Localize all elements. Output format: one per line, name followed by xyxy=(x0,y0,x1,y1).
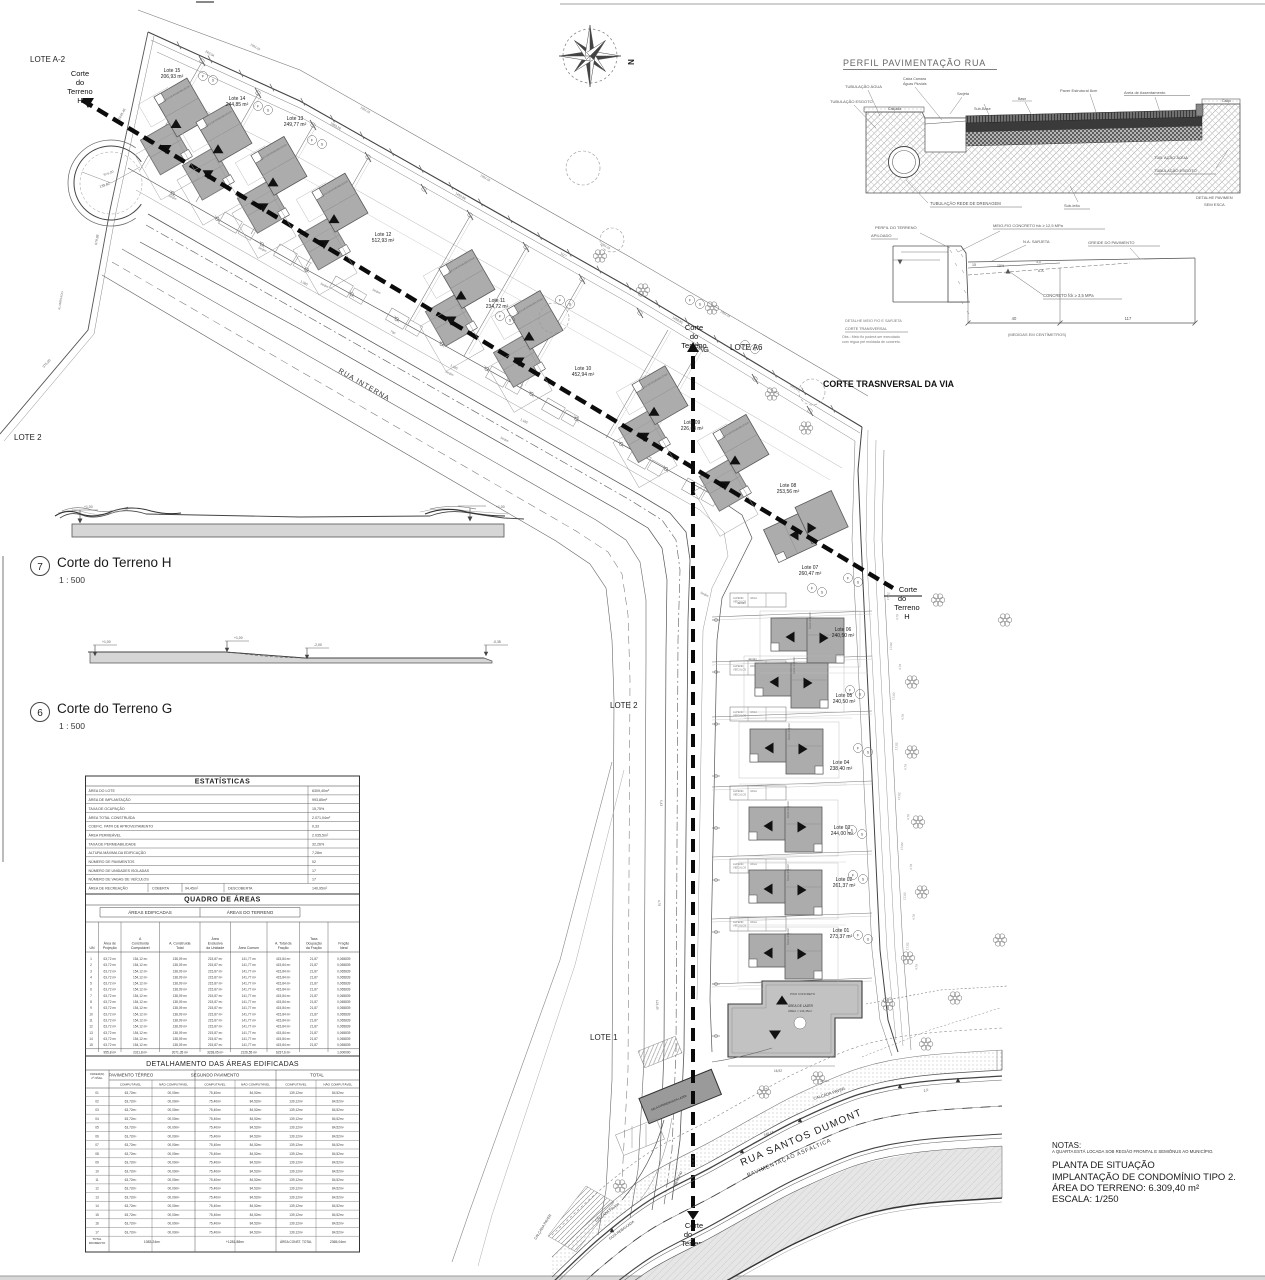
svg-text:84,52m²: 84,52m² xyxy=(250,1178,262,1182)
svg-text:0,065839: 0,065839 xyxy=(337,1019,351,1023)
svg-text:S: S xyxy=(509,318,512,323)
svg-text:Corte: Corte xyxy=(685,1221,703,1230)
svg-text:15: 15 xyxy=(972,263,976,267)
svg-text:139,12m²: 139,12m² xyxy=(289,1161,302,1165)
svg-text:63,72 m²: 63,72 m² xyxy=(104,994,117,998)
svg-text:141,77 m²: 141,77 m² xyxy=(242,1025,256,1029)
svg-text:84,52m²: 84,52m² xyxy=(332,1195,344,1199)
svg-text:139,12m²: 139,12m² xyxy=(289,1091,302,1095)
svg-text:+1281,88m²: +1281,88m² xyxy=(226,1240,245,1244)
svg-text:NÃO COMPUTÁVEL: NÃO COMPUTÁVEL xyxy=(241,1082,270,1087)
svg-text:141,77 m²: 141,77 m² xyxy=(242,1037,256,1041)
svg-text:Taxa: Taxa xyxy=(310,937,317,941)
svg-text:260,47 m²: 260,47 m² xyxy=(799,571,822,577)
svg-text:LOTE 2: LOTE 2 xyxy=(14,433,42,442)
svg-text:COMPUTÁVEL: COMPUTÁVEL xyxy=(120,1083,142,1087)
svg-text:139,12m²: 139,12m² xyxy=(289,1213,302,1217)
svg-text:117: 117 xyxy=(1125,316,1132,321)
svg-text:84,52m²: 84,52m² xyxy=(332,1230,344,1234)
svg-text:Jardim: Jardim xyxy=(748,657,758,661)
svg-text:75,40m²: 75,40m² xyxy=(209,1161,221,1165)
svg-text:da Unidade: da Unidade xyxy=(206,946,224,950)
svg-text:PERFIL DO TERRENO: PERFIL DO TERRENO xyxy=(875,225,917,230)
svg-text:0,065839: 0,065839 xyxy=(337,1012,351,1016)
svg-text:ÁREAS DO TERRENO: ÁREAS DO TERRENO xyxy=(227,909,274,915)
svg-text:ESTATÍSTICAS: ESTATÍSTICAS xyxy=(195,777,251,786)
svg-text:63,72m²: 63,72m² xyxy=(125,1100,137,1104)
svg-text:A. Construída: A. Construída xyxy=(169,942,190,946)
svg-text:Ideal: Ideal xyxy=(340,946,348,950)
svg-text:Terreno: Terreno xyxy=(67,87,92,96)
svg-text:84,52m²: 84,52m² xyxy=(332,1169,344,1173)
svg-text:1,000000: 1,000000 xyxy=(337,1051,351,1055)
svg-text:0,065839: 0,065839 xyxy=(337,982,351,986)
svg-text:1 : 500: 1 : 500 xyxy=(59,575,85,585)
svg-text:63,72 m²: 63,72 m² xyxy=(104,963,117,967)
svg-text:12: 12 xyxy=(89,1025,93,1029)
svg-text:Terreno: Terreno xyxy=(894,603,919,612)
svg-text:63,72m²: 63,72m² xyxy=(125,1134,137,1138)
svg-text:07: 07 xyxy=(95,1143,99,1147)
svg-text:84,52m²: 84,52m² xyxy=(250,1100,262,1104)
svg-text:Calçada: Calçada xyxy=(888,107,901,111)
svg-text:4,78: 4,78 xyxy=(912,914,916,920)
svg-text:415,84 m²: 415,84 m² xyxy=(276,963,290,967)
svg-text:84,52m²: 84,52m² xyxy=(332,1143,344,1147)
svg-text:7: 7 xyxy=(90,994,92,998)
svg-text:84,52m²: 84,52m² xyxy=(250,1195,262,1199)
svg-text:17: 17 xyxy=(312,869,316,873)
svg-text:GREIDE DO PAVIMENTO: GREIDE DO PAVIMENTO xyxy=(1088,240,1134,245)
svg-text:154,12 m²: 154,12 m² xyxy=(133,1012,147,1016)
svg-text:TUBULAÇÃO ESGOTO: TUBULAÇÃO ESGOTO xyxy=(830,99,873,104)
svg-text:75,40m²: 75,40m² xyxy=(209,1213,221,1217)
svg-text:COBERTA: COBERTA xyxy=(152,887,170,891)
svg-text:139,12m²: 139,12m² xyxy=(289,1178,302,1182)
svg-text:PERFIL PAVIMENTAÇÃO RUA: PERFIL PAVIMENTAÇÃO RUA xyxy=(843,58,986,68)
svg-text:5: 5 xyxy=(90,982,92,986)
svg-text:CORTE TRANSVERSAL: CORTE TRANSVERSAL xyxy=(845,327,887,331)
svg-text:84,52m²: 84,52m² xyxy=(332,1213,344,1217)
svg-text:PLANTA DE SITUAÇÃO: PLANTA DE SITUAÇÃO xyxy=(1052,1160,1155,1171)
svg-text:3238,05 m²: 3238,05 m² xyxy=(207,1051,223,1055)
svg-text:S: S xyxy=(862,877,865,882)
svg-text:S: S xyxy=(569,302,572,307)
svg-text:415,84 m²: 415,84 m² xyxy=(276,1031,290,1035)
svg-text:S: S xyxy=(867,937,870,942)
svg-text:00,00m²: 00,00m² xyxy=(168,1230,180,1234)
svg-text:84,52m²: 84,52m² xyxy=(250,1091,262,1095)
svg-text:240,50 m²: 240,50 m² xyxy=(832,633,855,639)
svg-text:21,87: 21,87 xyxy=(310,982,318,986)
svg-text:17,02: 17,02 xyxy=(900,842,904,850)
svg-text:COMPUTÁVEL: COMPUTÁVEL xyxy=(285,1083,307,1087)
svg-text:154,12 m²: 154,12 m² xyxy=(133,957,147,961)
svg-text:138,09 m²: 138,09 m² xyxy=(173,982,187,986)
svg-text:16: 16 xyxy=(95,1222,99,1226)
svg-text:A. Total da: A. Total da xyxy=(275,942,292,946)
svg-text:84,52m²: 84,52m² xyxy=(332,1187,344,1191)
svg-text:138,09 m²: 138,09 m² xyxy=(173,969,187,973)
svg-text:ALPEND.: ALPEND. xyxy=(733,596,744,600)
svg-text:21,87: 21,87 xyxy=(310,1031,318,1035)
svg-text:63,72m²: 63,72m² xyxy=(125,1187,137,1191)
svg-text:139,12m²: 139,12m² xyxy=(289,1134,302,1138)
svg-text:139,12m²: 139,12m² xyxy=(289,1195,302,1199)
svg-text:84,52m²: 84,52m² xyxy=(250,1143,262,1147)
svg-text:IMPLANTAÇÃO DE CONDOMÍNIO TIPO: IMPLANTAÇÃO DE CONDOMÍNIO TIPO 2. xyxy=(1052,1172,1236,1183)
svg-text:ÁREA PERMEÁVEL: ÁREA PERMEÁVEL xyxy=(89,834,122,838)
svg-text:00,00m²: 00,00m² xyxy=(168,1152,180,1156)
svg-text:75,40m²: 75,40m² xyxy=(209,1117,221,1121)
svg-text:84,52m²: 84,52m² xyxy=(332,1091,344,1095)
svg-text:138,09 m²: 138,09 m² xyxy=(173,963,187,967)
svg-text:00,00m²: 00,00m² xyxy=(168,1178,180,1182)
svg-text:415,84 m²: 415,84 m² xyxy=(276,1000,290,1004)
svg-text:TAXA DE PERMEABILIDADE: TAXA DE PERMEABILIDADE xyxy=(89,842,137,846)
svg-text:S: S xyxy=(867,750,870,755)
svg-text:ÁREA IMPERM.: ÁREA IMPERM. xyxy=(787,800,790,818)
svg-text:4,78: 4,78 xyxy=(906,814,910,820)
svg-text:154,12 m²: 154,12 m² xyxy=(133,1031,147,1035)
svg-text:21,87: 21,87 xyxy=(310,1006,318,1010)
svg-text:Corte do Terreno H: Corte do Terreno H xyxy=(57,555,172,570)
svg-text:2071,35 m²: 2071,35 m² xyxy=(172,1051,188,1055)
svg-text:17,02: 17,02 xyxy=(897,792,901,800)
svg-text:141,77 m²: 141,77 m² xyxy=(242,994,256,998)
svg-text:DETALHE MEIO FIO E SARJETA: DETALHE MEIO FIO E SARJETA xyxy=(845,319,902,323)
svg-text:00,00m²: 00,00m² xyxy=(168,1222,180,1226)
svg-text:63,72m²: 63,72m² xyxy=(125,1195,137,1199)
svg-text:ALPEND.: ALPEND. xyxy=(733,862,744,866)
svg-text:21,87: 21,87 xyxy=(310,1025,318,1029)
svg-text:415,84 m²: 415,84 m² xyxy=(276,994,290,998)
svg-text:84,52m²: 84,52m² xyxy=(250,1222,262,1226)
svg-text:141,77 m²: 141,77 m² xyxy=(242,988,256,992)
svg-text:LOTE 1: LOTE 1 xyxy=(590,1033,618,1042)
svg-text:0,065839: 0,065839 xyxy=(337,1031,351,1035)
svg-text:21,87: 21,87 xyxy=(310,1043,318,1047)
svg-text:226,63 m²: 226,63 m² xyxy=(681,426,704,432)
svg-text:0,065839: 0,065839 xyxy=(337,994,351,998)
svg-text:00,00m²: 00,00m² xyxy=(168,1169,180,1173)
svg-text:0,065839: 0,065839 xyxy=(337,957,351,961)
svg-text:415,84 m²: 415,84 m² xyxy=(276,1037,290,1041)
svg-text:Sub-leito: Sub-leito xyxy=(1064,203,1081,208)
svg-text:5,43: 5,43 xyxy=(659,800,663,807)
svg-text:4,78: 4,78 xyxy=(903,764,907,770)
svg-text:ESCALA: 1/250: ESCALA: 1/250 xyxy=(1052,1194,1119,1205)
svg-text:14: 14 xyxy=(89,1037,93,1041)
svg-text:84,52m²: 84,52m² xyxy=(250,1187,262,1191)
svg-text:04: 04 xyxy=(95,1117,99,1121)
svg-text:TAXA DE OCUPAÇÃO: TAXA DE OCUPAÇÃO xyxy=(89,806,125,811)
svg-text:NÃO COMPUTÁVEL: NÃO COMPUTÁVEL xyxy=(159,1082,188,1087)
svg-text:84,52m²: 84,52m² xyxy=(332,1152,344,1156)
svg-text:2126,55 m²: 2126,55 m² xyxy=(241,1051,257,1055)
svg-text:955,8 m²: 955,8 m² xyxy=(104,1051,117,1055)
svg-text:141,77 m²: 141,77 m² xyxy=(242,1043,256,1047)
svg-text:QUADRO DE ÁREAS: QUADRO DE ÁREAS xyxy=(184,895,261,904)
svg-text:0,065839: 0,065839 xyxy=(337,1043,351,1047)
svg-text:154,12 m²: 154,12 m² xyxy=(133,963,147,967)
svg-text:1083,24m²: 1083,24m² xyxy=(144,1240,161,1244)
svg-text:141,77 m²: 141,77 m² xyxy=(242,975,256,979)
svg-text:2º NÍVEL: 2º NÍVEL xyxy=(91,1076,103,1080)
svg-text:S: S xyxy=(267,108,270,113)
svg-text:ÁREA DE RECREAÇÃO: ÁREA DE RECREAÇÃO xyxy=(89,886,129,891)
svg-text:141,77 m²: 141,77 m² xyxy=(242,1006,256,1010)
svg-text:VEÍCULOS: VEÍCULOS xyxy=(733,714,746,718)
svg-text:10: 10 xyxy=(95,1169,99,1173)
svg-text:244,85 m²: 244,85 m² xyxy=(226,102,249,108)
svg-text:21,87: 21,87 xyxy=(310,1000,318,1004)
svg-text:215,87 m²: 215,87 m² xyxy=(208,1025,222,1029)
svg-text:215,87 m²: 215,87 m² xyxy=(208,988,222,992)
svg-text:63,72 m²: 63,72 m² xyxy=(104,1025,117,1029)
svg-text:ALPEND.: ALPEND. xyxy=(733,920,744,924)
svg-text:123,45: 123,45 xyxy=(655,1000,659,1010)
svg-text:00,00m²: 00,00m² xyxy=(168,1091,180,1095)
svg-text:21,87: 21,87 xyxy=(310,1037,318,1041)
svg-text:139,12m²: 139,12m² xyxy=(289,1126,302,1130)
svg-text:17,02: 17,02 xyxy=(886,592,890,600)
svg-text:2365,04m²: 2365,04m² xyxy=(330,1240,347,1244)
svg-text:154,12 m²: 154,12 m² xyxy=(133,994,147,998)
svg-text:84,52m²: 84,52m² xyxy=(250,1169,262,1173)
svg-text:84,52m²: 84,52m² xyxy=(250,1152,262,1156)
svg-text:21,87: 21,87 xyxy=(310,1012,318,1016)
svg-text:138,09 m²: 138,09 m² xyxy=(173,988,187,992)
svg-text:Exclusiva: Exclusiva xyxy=(208,942,223,946)
svg-text:TOTAL: TOTAL xyxy=(310,1073,324,1078)
svg-text:00,00m²: 00,00m² xyxy=(168,1100,180,1104)
svg-text:215,87 m²: 215,87 m² xyxy=(208,963,222,967)
svg-text:512,93 m²: 512,93 m² xyxy=(372,238,395,244)
svg-text:ALTURA MÁXIMA DA EDIFICAÇÃO: ALTURA MÁXIMA DA EDIFICAÇÃO xyxy=(89,850,147,855)
svg-text:Computável: Computável xyxy=(131,946,150,950)
svg-text:05: 05 xyxy=(95,1126,99,1130)
svg-text:Corte: Corte xyxy=(71,69,89,78)
svg-text:63,72 m²: 63,72 m² xyxy=(104,1019,117,1023)
svg-text:215,87 m²: 215,87 m² xyxy=(208,994,222,998)
svg-text:84,52m²: 84,52m² xyxy=(332,1178,344,1182)
svg-text:ALPEND.: ALPEND. xyxy=(733,710,744,714)
svg-text:0,065839: 0,065839 xyxy=(337,988,351,992)
svg-text:63,72m²: 63,72m² xyxy=(125,1204,137,1208)
svg-text:75,40m²: 75,40m² xyxy=(209,1204,221,1208)
svg-text:21,87: 21,87 xyxy=(310,969,318,973)
svg-text:84,52m²: 84,52m² xyxy=(332,1126,344,1130)
svg-text:154,12 m²: 154,12 m² xyxy=(133,988,147,992)
svg-text:75,40m²: 75,40m² xyxy=(209,1108,221,1112)
svg-text:63,72m²: 63,72m² xyxy=(125,1152,137,1156)
svg-text:00,00m²: 00,00m² xyxy=(168,1195,180,1199)
svg-text:NÚMERO DE UNIDADES ISOLADAS: NÚMERO DE UNIDADES ISOLADAS xyxy=(89,868,150,873)
svg-text:141,77 m²: 141,77 m² xyxy=(242,1000,256,1004)
svg-text:84,52m²: 84,52m² xyxy=(332,1222,344,1226)
svg-text:+1,00: +1,00 xyxy=(102,640,111,644)
svg-text:APILOADO: APILOADO xyxy=(871,233,891,238)
svg-text:LOTE 2: LOTE 2 xyxy=(610,701,638,710)
svg-text:VAGA: VAGA xyxy=(750,789,757,793)
svg-text:SEM ESCA: SEM ESCA xyxy=(1204,202,1225,207)
svg-text:84,52m²: 84,52m² xyxy=(250,1213,262,1217)
svg-text:DETALHAMENTO DAS ÁREAS EDIFIC: DETALHAMENTO DAS ÁREAS EDIFICADAS xyxy=(146,1059,299,1068)
svg-text:249,77 m²: 249,77 m² xyxy=(284,122,307,128)
svg-text:TUBULAÇÃO REDE DE DRENAGEM: TUBULAÇÃO REDE DE DRENAGEM xyxy=(930,201,1001,206)
svg-text:215,87 m²: 215,87 m² xyxy=(208,1006,222,1010)
svg-text:Calçx: Calçx xyxy=(1222,99,1231,103)
svg-text:9: 9 xyxy=(90,1006,92,1010)
svg-text:415,84 m²: 415,84 m² xyxy=(276,1012,290,1016)
svg-text:215,87 m²: 215,87 m² xyxy=(208,982,222,986)
svg-text:139,12m²: 139,12m² xyxy=(289,1117,302,1121)
svg-text:415,84 m²: 415,84 m² xyxy=(276,988,290,992)
svg-text:84,52m²: 84,52m² xyxy=(332,1108,344,1112)
svg-text:138,09 m²: 138,09 m² xyxy=(173,975,187,979)
svg-text:75,40m²: 75,40m² xyxy=(209,1230,221,1234)
svg-text:00,00m²: 00,00m² xyxy=(168,1213,180,1217)
svg-text:16,92: 16,92 xyxy=(774,1069,782,1073)
svg-text:253,56 m²: 253,56 m² xyxy=(777,489,800,495)
svg-text:63,72 m²: 63,72 m² xyxy=(104,1012,117,1016)
svg-text:215,87 m²: 215,87 m² xyxy=(208,1019,222,1023)
svg-text:Fração: Fração xyxy=(338,942,349,946)
svg-text:215,87 m²: 215,87 m² xyxy=(208,1000,222,1004)
svg-text:7: 7 xyxy=(37,562,43,573)
svg-text:ÁREA IMPERM.: ÁREA IMPERM. xyxy=(793,656,796,674)
svg-text:VAGA: VAGA xyxy=(750,862,757,866)
svg-text:Base: Base xyxy=(1018,97,1026,101)
svg-text:75,40m²: 75,40m² xyxy=(209,1091,221,1095)
svg-text:NÚMERO DE VAGAS DE VEÍCULOS: NÚMERO DE VAGAS DE VEÍCULOS xyxy=(89,877,150,882)
svg-text:VAGA: VAGA xyxy=(750,920,757,924)
svg-text:17,02: 17,02 xyxy=(905,942,909,950)
svg-text:A QUARTA ESTÁ LOCADA SOB REGIÃ: A QUARTA ESTÁ LOCADA SOB REGIÃO FRONTAL … xyxy=(1052,1149,1213,1154)
svg-text:138,09 m²: 138,09 m² xyxy=(173,1037,187,1041)
svg-text:S: S xyxy=(857,580,860,585)
svg-text:21,87: 21,87 xyxy=(310,994,318,998)
svg-text:63,72 m²: 63,72 m² xyxy=(104,975,117,979)
svg-text:17: 17 xyxy=(95,1230,99,1234)
svg-text:COEFIC. PATR DE APROVEITAMENTO: COEFIC. PATR DE APROVEITAMENTO xyxy=(89,825,154,829)
svg-text:415,84 m²: 415,84 m² xyxy=(276,1006,290,1010)
svg-text:00,00m²: 00,00m² xyxy=(168,1117,180,1121)
svg-text:215,87 m²: 215,87 m² xyxy=(208,1043,222,1047)
svg-text:63,72 m²: 63,72 m² xyxy=(104,982,117,986)
svg-text:415,84 m²: 415,84 m² xyxy=(276,957,290,961)
svg-text:154,12 m²: 154,12 m² xyxy=(133,1037,147,1041)
svg-text:06: 06 xyxy=(95,1134,99,1138)
svg-text:00,00m²: 00,00m² xyxy=(168,1143,180,1147)
svg-text:PAVIMENTO TÉRREO: PAVIMENTO TÉRREO xyxy=(109,1073,154,1078)
svg-text:141,77 m²: 141,77 m² xyxy=(242,957,256,961)
svg-text:141,77 m²: 141,77 m² xyxy=(242,982,256,986)
svg-text:63,72m²: 63,72m² xyxy=(125,1117,137,1121)
svg-text:ÁREA DE IMPLANTAÇÃO: ÁREA DE IMPLANTAÇÃO xyxy=(89,797,131,802)
svg-text:A.A.: A.A. xyxy=(1038,269,1044,273)
svg-text:415,84 m²: 415,84 m² xyxy=(276,982,290,986)
svg-text:138,09 m²: 138,09 m² xyxy=(173,1043,187,1047)
svg-text:139,12m²: 139,12m² xyxy=(289,1222,302,1226)
svg-text:15%: 15% xyxy=(997,264,1005,268)
svg-text:84,52m²: 84,52m² xyxy=(332,1100,344,1104)
svg-text:6237,6 m²: 6237,6 m² xyxy=(276,1051,290,1055)
svg-text:S: S xyxy=(859,692,862,697)
svg-text:154,12 m²: 154,12 m² xyxy=(133,982,147,986)
svg-text:10: 10 xyxy=(89,1012,93,1016)
svg-text:Caixa Camara: Caixa Camara xyxy=(903,77,926,81)
svg-text:01: 01 xyxy=(95,1091,99,1095)
svg-text:2: 2 xyxy=(90,963,92,967)
svg-text:ÁREA DO TERRENO: 6.309,40 m²: ÁREA DO TERRENO: 6.309,40 m² xyxy=(1052,1183,1199,1194)
svg-text:139,12m²: 139,12m² xyxy=(289,1108,302,1112)
svg-text:75,40m²: 75,40m² xyxy=(209,1134,221,1138)
svg-text:13: 13 xyxy=(89,1031,93,1035)
svg-text:206,93 m²: 206,93 m² xyxy=(161,74,184,80)
svg-text:PAVIMENTO: PAVIMENTO xyxy=(89,1241,106,1245)
svg-text:13: 13 xyxy=(95,1195,99,1199)
svg-text:ÁREAS EDIFICADAS: ÁREAS EDIFICADAS xyxy=(128,909,172,915)
svg-text:993,85m²: 993,85m² xyxy=(312,798,328,802)
svg-text:Área Comum: Área Comum xyxy=(238,946,259,950)
svg-text:15: 15 xyxy=(95,1213,99,1217)
svg-text:+1,00: +1,00 xyxy=(496,505,505,509)
svg-text:63,72m²: 63,72m² xyxy=(125,1213,137,1217)
svg-text:0,065839: 0,065839 xyxy=(337,975,351,979)
svg-text:Obs.: Meio fio poderá ser exec: Obs.: Meio fio poderá ser executado xyxy=(842,335,900,339)
svg-text:+1,00: +1,00 xyxy=(84,505,93,509)
svg-text:3,0: 3,0 xyxy=(1036,260,1041,264)
svg-text:84,52m²: 84,52m² xyxy=(250,1134,262,1138)
svg-text:75,40m²: 75,40m² xyxy=(209,1100,221,1104)
svg-text:17,02: 17,02 xyxy=(894,742,898,750)
svg-text:75,40m²: 75,40m² xyxy=(209,1222,221,1226)
svg-text:H: H xyxy=(77,96,82,105)
svg-text:32,26%: 32,26% xyxy=(312,842,325,846)
svg-text:139,12m²: 139,12m² xyxy=(289,1169,302,1173)
svg-text:Corte do Terreno G: Corte do Terreno G xyxy=(57,701,172,716)
svg-text:do: do xyxy=(76,78,84,87)
svg-text:ÁREA IMPERM.: ÁREA IMPERM. xyxy=(809,611,812,629)
svg-text:141,77 m²: 141,77 m² xyxy=(242,963,256,967)
svg-text:63,72 m²: 63,72 m² xyxy=(104,988,117,992)
svg-text:63,72 m²: 63,72 m² xyxy=(104,1037,117,1041)
svg-text:0,065839: 0,065839 xyxy=(337,1037,351,1041)
svg-text:4,78: 4,78 xyxy=(914,964,918,970)
svg-text:LOTE A6: LOTE A6 xyxy=(730,343,763,352)
svg-text:00,00m²: 00,00m² xyxy=(168,1187,180,1191)
svg-text:Paver Estrutural 8cm: Paver Estrutural 8cm xyxy=(1060,88,1098,93)
svg-text:63,72 m²: 63,72 m² xyxy=(104,969,117,973)
svg-text:ÁREA DE LAZER: ÁREA DE LAZER xyxy=(788,1004,814,1008)
svg-text:00,00m²: 00,00m² xyxy=(168,1204,180,1208)
svg-text:84,52m²: 84,52m² xyxy=(250,1161,262,1165)
svg-text:Construída: Construída xyxy=(132,942,149,946)
svg-text:63,72m²: 63,72m² xyxy=(125,1222,137,1226)
svg-text:154,12 m²: 154,12 m² xyxy=(133,975,147,979)
svg-text:17,02: 17,02 xyxy=(892,692,896,700)
svg-text:84,52m²: 84,52m² xyxy=(332,1204,344,1208)
svg-text:63,72m²: 63,72m² xyxy=(125,1161,137,1165)
svg-text:63,72m²: 63,72m² xyxy=(125,1143,137,1147)
svg-text:com régua pré moldada de concr: com régua pré moldada de concreto. xyxy=(842,340,901,344)
svg-text:215,87 m²: 215,87 m² xyxy=(208,975,222,979)
svg-text:MEIO-FIO CONCRETO fck ≥ 12,5 M: MEIO-FIO CONCRETO fck ≥ 12,5 MPa xyxy=(993,223,1064,228)
svg-text:452,94 m²: 452,94 m² xyxy=(572,372,595,378)
svg-text:CONCRETO fck ≥ 3,5 MPa: CONCRETO fck ≥ 3,5 MPa xyxy=(1043,293,1094,298)
